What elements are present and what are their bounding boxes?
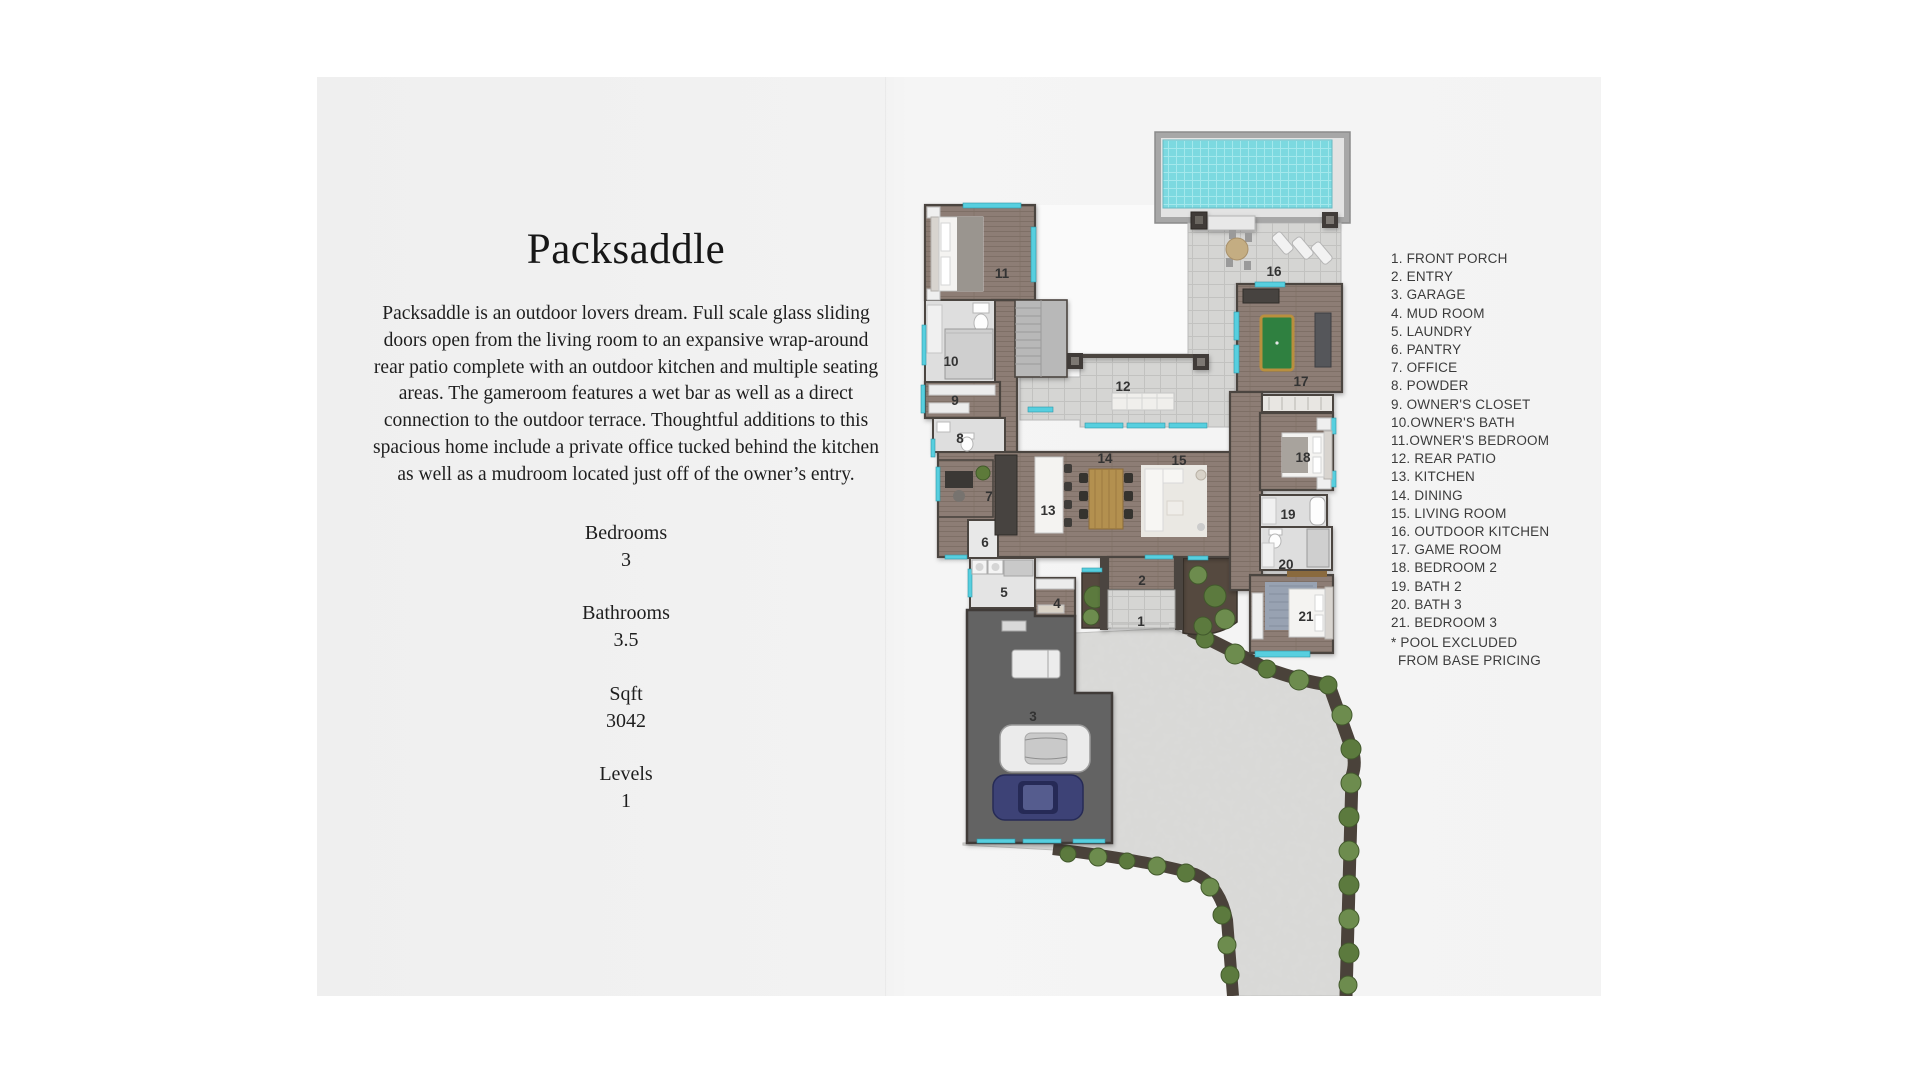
- property-stats: Bedrooms 3 Bathrooms 3.5 Sqft 3042 Level…: [370, 520, 882, 816]
- legend-item: 20. BATH 3: [1391, 596, 1549, 614]
- floor-plan: 1 2 3 4 5 6 7 8 9 10 11 12 13 14 15 16 1…: [905, 77, 1465, 996]
- stat-value: 1: [370, 788, 882, 815]
- stat-label: Levels: [370, 761, 882, 788]
- property-summary: Packsaddle Packsaddle is an outdoor love…: [370, 225, 882, 842]
- legend-item: 17. GAME ROOM: [1391, 541, 1549, 559]
- garage-steps: [1002, 621, 1026, 631]
- legend-item: 21. BEDROOM 3: [1391, 614, 1549, 632]
- room-label: 9: [951, 393, 959, 408]
- stat-value: 3: [370, 547, 882, 574]
- brochure-card: Packsaddle Packsaddle is an outdoor love…: [317, 77, 1601, 996]
- entry-wall-right: [1175, 557, 1183, 630]
- legend-item: 6. PANTRY: [1391, 341, 1549, 359]
- legend-item: 1. FRONT PORCH: [1391, 250, 1549, 268]
- golf-cart: [1012, 650, 1060, 678]
- stat-sqft: Sqft 3042: [370, 681, 882, 735]
- room-label: 18: [1295, 450, 1311, 465]
- legend-item: 3. GARAGE: [1391, 286, 1549, 304]
- legend-item: 12. REAR PATIO: [1391, 450, 1549, 468]
- stat-label: Bedrooms: [370, 520, 882, 547]
- legend-item: 18. BEDROOM 2: [1391, 559, 1549, 577]
- room-label: 6: [981, 535, 989, 550]
- room-label: 13: [1040, 503, 1056, 518]
- laundry-appliances: [972, 560, 1033, 576]
- room-label: 15: [1171, 453, 1187, 468]
- car-white: [1000, 725, 1090, 772]
- stat-label: Sqft: [370, 681, 882, 708]
- legend-item: 15. LIVING ROOM: [1391, 505, 1549, 523]
- legend-item: 13. KITCHEN: [1391, 468, 1549, 486]
- legend-item: 16. OUTDOOR KITCHEN: [1391, 523, 1549, 541]
- stat-value: 3042: [370, 708, 882, 735]
- pool: [1155, 132, 1350, 223]
- legend-item: 19. BATH 2: [1391, 578, 1549, 596]
- room-label: 10: [943, 354, 958, 369]
- legend-item: 8. POWDER: [1391, 377, 1549, 395]
- room-label: 17: [1293, 374, 1308, 389]
- room-label: 21: [1298, 609, 1314, 624]
- stairs: [1015, 300, 1067, 377]
- legend-item: 9. OWNER'S CLOSET: [1391, 396, 1549, 414]
- room-label: 14: [1097, 451, 1113, 466]
- living-furniture: [1141, 465, 1207, 537]
- room-label: 4: [1053, 596, 1061, 611]
- room-label: 19: [1280, 507, 1295, 522]
- mud-lockers: [1036, 579, 1074, 589]
- closet-shelf: [929, 403, 969, 413]
- stat-bedrooms: Bedrooms 3: [370, 520, 882, 574]
- patio-beam: [1067, 354, 1209, 358]
- legend-item: 2. ENTRY: [1391, 268, 1549, 286]
- stat-label: Bathrooms: [370, 600, 882, 627]
- legend-item: 7. OFFICE: [1391, 359, 1549, 377]
- room-label: 1: [1137, 614, 1145, 629]
- room-label: 3: [1029, 709, 1037, 724]
- hall-bedroom-wing: [1230, 392, 1262, 590]
- bed-owners: [927, 207, 983, 300]
- stat-value: 3.5: [370, 627, 882, 654]
- legend-note: * POOL EXCLUDED: [1391, 634, 1549, 652]
- room-label: 16: [1266, 264, 1282, 279]
- page-seam-divider: [885, 77, 886, 996]
- car-blue: [993, 775, 1083, 820]
- stat-bathrooms: Bathrooms 3.5: [370, 600, 882, 654]
- patio-sofa: [1112, 393, 1174, 410]
- room-label: 12: [1115, 379, 1130, 394]
- room-label: 11: [995, 266, 1010, 281]
- room-legend: 1. FRONT PORCH 2. ENTRY 3. GARAGE 4. MUD…: [1391, 250, 1549, 671]
- legend-item: 14. DINING: [1391, 487, 1549, 505]
- room-label: 2: [1138, 573, 1146, 588]
- legend-item: 5. LAUNDRY: [1391, 323, 1549, 341]
- legend-note: FROM BASE PRICING: [1391, 652, 1549, 670]
- legend-item: 11.OWNER'S BEDROOM: [1391, 432, 1549, 450]
- property-description: Packsaddle is an outdoor lovers dream. F…: [370, 301, 882, 489]
- closet-shelf: [929, 385, 995, 395]
- legend-item: 4. MUD ROOM: [1391, 305, 1549, 323]
- stat-levels: Levels 1: [370, 761, 882, 815]
- closet-bedroom-2: [1262, 395, 1333, 412]
- legend-item: 10.OWNER'S BATH: [1391, 414, 1549, 432]
- page-title: Packsaddle: [370, 225, 882, 274]
- room-label: 7: [985, 489, 993, 504]
- room-label: 5: [1000, 585, 1008, 600]
- room-label: 20: [1278, 557, 1293, 572]
- room-label: 8: [956, 431, 964, 446]
